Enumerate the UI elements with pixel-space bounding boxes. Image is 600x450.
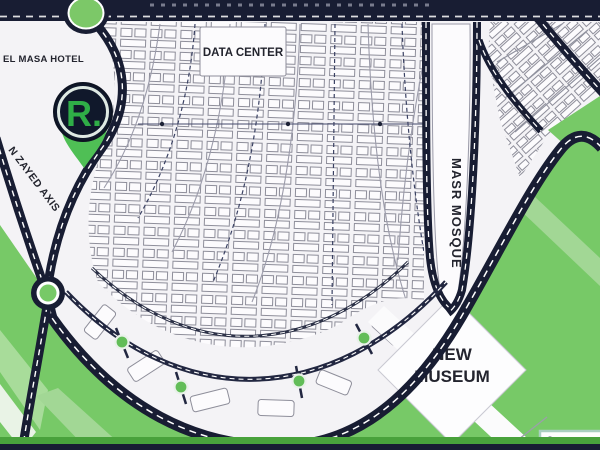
masr-mosque-label: MASR MOSQUE: [449, 158, 464, 269]
bottom-frame: [0, 437, 600, 450]
data-center-area: DATA CENTER: [200, 27, 286, 76]
site-map: NEW MUSEUM MASR MOSQUE DATA CENTER: [0, 0, 600, 450]
data-center-label: DATA CENTER: [203, 47, 284, 59]
roundabout-west: [31, 276, 65, 310]
el-masa-hotel-label: EL MASA HOTEL: [3, 54, 84, 65]
map-viewport: NEW MUSEUM MASR MOSQUE DATA CENTER: [0, 0, 600, 450]
logo-letter: R.: [66, 93, 102, 134]
